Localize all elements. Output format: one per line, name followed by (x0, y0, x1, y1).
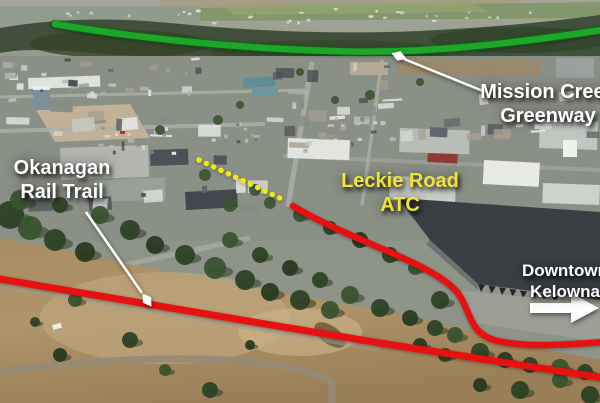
downtown-label-line2: Kelowna (455, 281, 600, 302)
downtown-label-line1: Downtown (455, 260, 600, 281)
downtown-label: Downtown Kelowna (455, 260, 600, 302)
atc-label-line2: ATC (290, 193, 510, 217)
atc-label-line1: Leckie Road (290, 169, 510, 193)
greenway-label: Mission Creek Greenway (438, 80, 600, 128)
greenway-label-line2: Greenway (438, 104, 600, 128)
atc-label: Leckie Road ATC (290, 169, 510, 217)
greenway-label-line1: Mission Creek (438, 80, 600, 104)
annotated-aerial-map: Mission Creek Greenway Okanagan Rail Tra… (0, 0, 600, 403)
rail-trail-label-line1: Okanagan (0, 156, 172, 180)
rail-trail-label-line2: Rail Trail (0, 180, 172, 204)
rail-trail-label: Okanagan Rail Trail (0, 156, 172, 204)
